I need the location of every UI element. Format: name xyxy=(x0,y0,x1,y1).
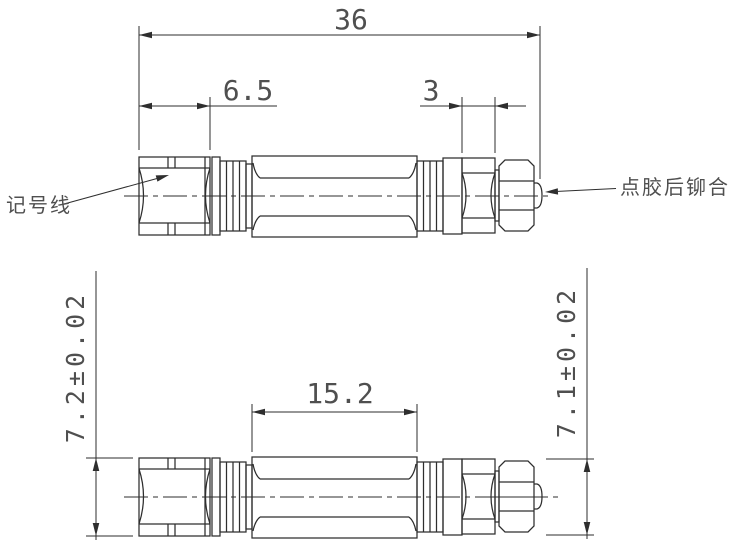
dimension-right-nut-height: 7.1±0.02 xyxy=(546,268,594,539)
dimension-left-hex-length: 6.5 xyxy=(139,74,277,150)
dim-overall-length-text: 36 xyxy=(334,3,368,36)
bottom-view: 15.2 7.2±0.02 7.1±0.02 xyxy=(61,268,594,540)
leader-rivet-note: 点胶后铆合 xyxy=(545,175,730,199)
dimension-coupling-length: 3 xyxy=(420,74,526,153)
dim-left-hex-length-text: 6.5 xyxy=(223,74,274,107)
dimension-overall-length: 36 xyxy=(139,3,540,179)
top-view: 36 6.5 3 记号线 点胶后铆合 xyxy=(6,3,730,237)
marking-line-label: 记号线 xyxy=(6,193,72,217)
dimension-left-hex-height: 7.2±0.02 xyxy=(61,271,133,540)
dimension-body-length: 15.2 xyxy=(252,377,417,452)
dim-right-nut-height-text: 7.1±0.02 xyxy=(552,286,581,438)
engineering-drawing: 36 6.5 3 记号线 点胶后铆合 xyxy=(0,0,750,553)
drawing-canvas: 36 6.5 3 记号线 点胶后铆合 xyxy=(0,0,750,553)
dim-coupling-length-text: 3 xyxy=(423,74,440,107)
dim-body-length-text: 15.2 xyxy=(306,377,373,410)
rivet-note-label: 点胶后铆合 xyxy=(620,175,730,199)
dim-left-hex-height-text: 7.2±0.02 xyxy=(61,291,90,443)
